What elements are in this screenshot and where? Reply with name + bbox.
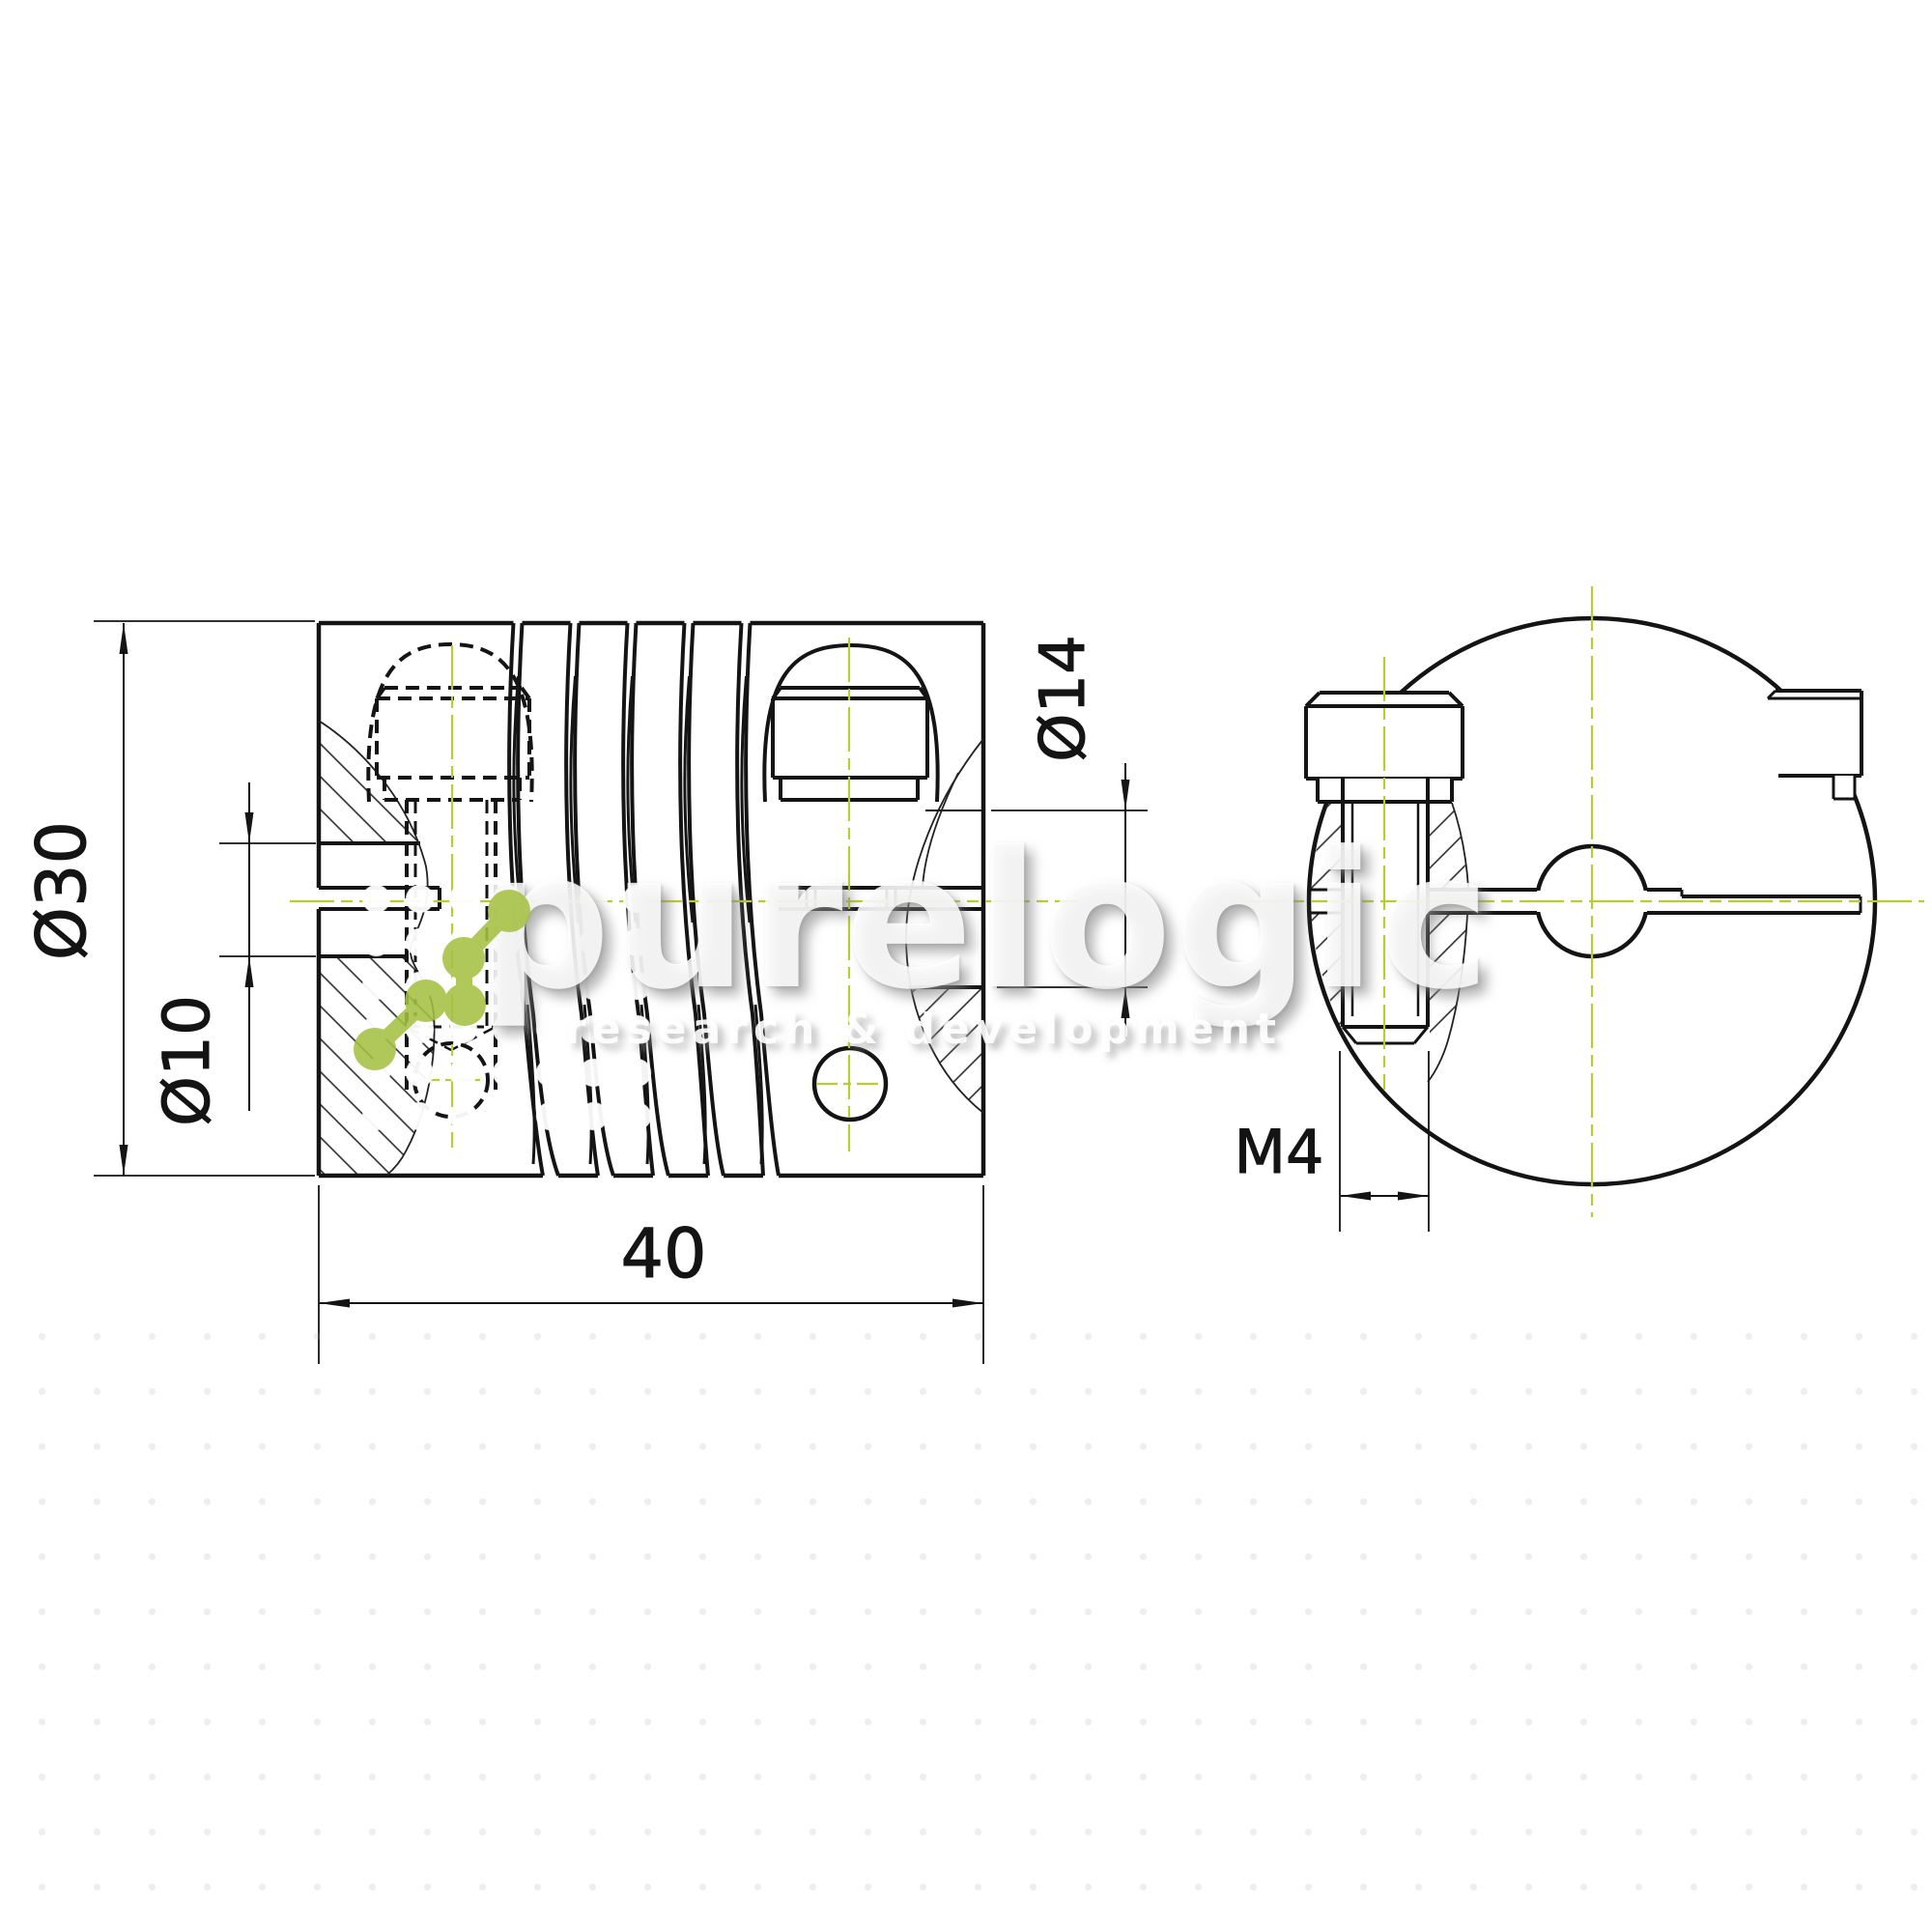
dim-thread: M4 bbox=[1235, 1117, 1324, 1187]
drawing-canvas: Ø30 Ø10 Ø14 40 M4 purelogic research & d… bbox=[0, 0, 1932, 1932]
dim-outer-diameter: Ø30 bbox=[22, 821, 101, 960]
end-view-far-screw-head bbox=[1768, 691, 1861, 799]
dim-counterbore-diameter: Ø14 bbox=[1028, 635, 1099, 762]
watermark-tagline: research & development bbox=[565, 1009, 1282, 1051]
dim-length: 40 bbox=[620, 1214, 706, 1293]
watermark-brand: purelogic bbox=[475, 827, 1492, 1016]
right-hub-screw bbox=[764, 645, 937, 802]
dim-bore-diameter: Ø10 bbox=[150, 995, 224, 1126]
page-dot-texture bbox=[0, 1285, 1932, 1932]
